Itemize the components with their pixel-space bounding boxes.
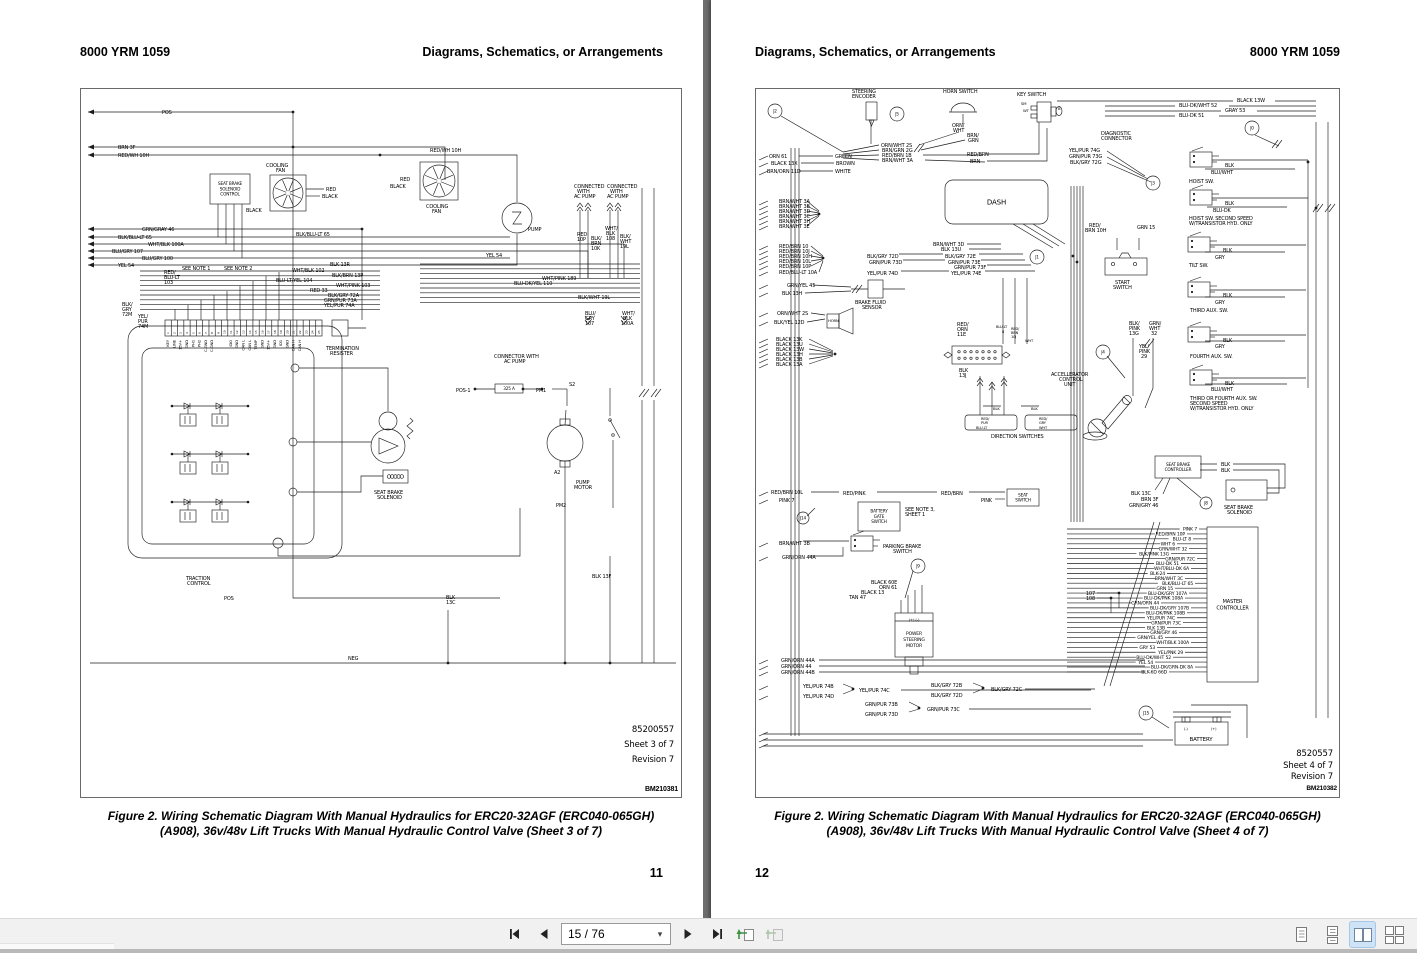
wire-tick — [759, 221, 768, 225]
pdf-page-left: 8000 YRM 1059 Diagrams, Schematics, or A… — [0, 0, 703, 920]
motor-tab — [910, 666, 918, 674]
wire-label: POS-1 — [456, 388, 470, 394]
fan-blade — [433, 183, 438, 195]
terminal-number: 10 — [223, 330, 227, 334]
wire-label: CONTROL — [187, 581, 211, 587]
wire-label: YEL/PUR 74D — [802, 694, 834, 700]
component-label: BATTERY — [870, 509, 888, 514]
wire-label: ENCODER — [852, 94, 876, 100]
terminal-number: 7 — [204, 332, 208, 334]
wire-label: GRY 53 — [1139, 645, 1155, 651]
terminal-label: GND — [184, 340, 189, 348]
terminal-label: GND — [234, 340, 239, 348]
pedal-base — [1083, 432, 1107, 440]
switch-pin — [1191, 291, 1193, 293]
terminal-label: C-GND — [209, 340, 214, 352]
wire-label: BRN/ORN 11D — [767, 169, 801, 175]
battery-terminal-label: (-) — [1184, 727, 1188, 731]
terminal-number: 8 — [210, 332, 214, 334]
first-page-icon — [507, 926, 523, 942]
wire-label: SEE NOTE 2 — [224, 266, 252, 272]
wire-label: BLU-DK — [1213, 208, 1232, 214]
wire-label: POS — [224, 596, 234, 602]
switch-lever — [1190, 232, 1201, 236]
wire-label: BM210381 — [645, 786, 678, 793]
wire-label: GRN/ORN 44A — [782, 555, 816, 561]
wire — [973, 689, 983, 693]
wire-label: GRY — [1039, 421, 1047, 425]
wire-label: YEL/PUR 74C — [858, 688, 890, 694]
terminal-number: 25 — [317, 330, 321, 334]
two-page-icon — [1352, 925, 1374, 945]
wire-label: BLK 13F — [592, 574, 612, 580]
wire-label: PINK 7 — [779, 498, 794, 504]
left-page-header-right: Diagrams, Schematics, or Arrangements — [422, 45, 663, 59]
wire-label: SOLENOID — [1227, 510, 1252, 516]
switch-pin — [1193, 155, 1195, 157]
wire-label: GRN/GRY 46 — [1129, 503, 1158, 509]
switch-pin — [1191, 246, 1193, 248]
wire-label: BLK 13R — [330, 262, 351, 268]
terminal-number: 5 — [191, 332, 195, 334]
junction-dot — [171, 453, 174, 456]
connector-pin — [976, 351, 978, 353]
switch-lever — [1192, 147, 1203, 151]
wire — [843, 145, 879, 152]
wire-label: BRN 10H — [1085, 228, 1107, 234]
connector-pin — [994, 357, 996, 359]
wire-label: RED/WH 10H — [430, 148, 461, 154]
wire-label: FOURTH AUX. SW. — [1190, 354, 1233, 360]
switch-pin — [1193, 373, 1195, 375]
wire-label: GRY — [1215, 255, 1226, 261]
terminal-label: PH1 — [190, 339, 195, 347]
previous-page-icon — [536, 926, 552, 942]
fan-blade — [441, 175, 453, 180]
connector-pin — [958, 357, 960, 359]
wire — [811, 313, 825, 315]
wire-label: PM1 — [536, 388, 546, 394]
terminal-number: 6 — [198, 332, 202, 334]
wire-label: 13J — [959, 373, 966, 379]
wire-label: GREEN — [835, 154, 852, 160]
wire-label: BLU/WHT — [1211, 170, 1234, 176]
wire-label: BLK — [1225, 201, 1235, 207]
wire-label: BLU/WHT — [1211, 387, 1234, 393]
connector-circle — [291, 364, 299, 372]
wire-tick — [759, 266, 768, 270]
junction-dot — [379, 154, 382, 157]
page-layout-group — [1288, 922, 1406, 947]
wire-label: BLK 13U — [941, 247, 962, 253]
wire-label: RED/BLU-LT 10A — [779, 270, 818, 276]
wire-label: Sheet 4 of 7 — [1283, 761, 1333, 771]
fan-blade — [275, 188, 286, 192]
wire — [1013, 224, 1053, 248]
component-label: SEAT BRAKE — [218, 181, 243, 186]
wire-label: BLACK 13X — [771, 161, 798, 167]
wire — [811, 246, 823, 256]
start-switch-icon — [1105, 258, 1147, 275]
wire-label: RESISTER — [330, 351, 354, 357]
component-label: SOLENOID — [220, 186, 241, 191]
fan-blade — [289, 180, 293, 191]
wire-label: BLU/GRY 107 — [112, 249, 143, 255]
switch-pin — [854, 545, 856, 547]
terminal-number: 19 — [279, 330, 283, 334]
next-view-icon — [765, 926, 785, 943]
connector-pin — [988, 357, 990, 359]
switch-pin — [1191, 285, 1193, 287]
fan-blade — [283, 180, 288, 191]
micro-switch-icon — [1190, 190, 1212, 205]
arrowhead-icon — [88, 235, 94, 240]
micro-switch-icon — [1188, 237, 1210, 252]
battery-terminal-label: (+) — [1211, 727, 1217, 731]
micro-switch-icon — [1188, 327, 1210, 342]
first-page-button[interactable] — [503, 922, 527, 946]
junction-dot — [918, 707, 921, 710]
connector-pin — [970, 357, 972, 359]
wire-label: WHT/PINK 103 — [336, 283, 370, 289]
wire-label: 108 — [1086, 596, 1095, 602]
wire-tick — [759, 285, 768, 289]
switch-pin — [1191, 330, 1193, 332]
wire — [88, 112, 500, 598]
wire-label: KEY SWITCH — [1017, 92, 1047, 98]
pump-mark — [512, 212, 522, 224]
junction-dot — [292, 111, 295, 114]
wire-label: RED/BRN — [967, 152, 989, 158]
wire-label: YEL 54 — [117, 263, 134, 269]
junction-dot — [247, 453, 250, 456]
fan-blade — [283, 195, 287, 206]
wire-tick — [759, 201, 768, 205]
fan-blade — [425, 175, 437, 180]
horn-flare — [839, 308, 853, 334]
wire-label: BRN — [970, 159, 981, 165]
connector-pin — [970, 351, 972, 353]
wire-label: PINK — [981, 498, 993, 504]
wire — [843, 690, 853, 694]
right-page-header-left: Diagrams, Schematics, or Arrangements — [755, 45, 996, 59]
wire-label: YEL/PUR 74A — [323, 303, 355, 309]
transistor-icon — [212, 414, 228, 426]
wire-label: GRN 15 — [1137, 225, 1155, 231]
wire — [973, 683, 983, 687]
wire-tick — [759, 163, 768, 167]
fan-blade — [275, 194, 286, 199]
wire — [1191, 705, 1247, 738]
wire-label: SWITCH — [1113, 285, 1132, 291]
wire-label: PM2 — [556, 503, 566, 509]
terminal-number: 17 — [267, 330, 271, 334]
wire-tick — [759, 492, 768, 496]
fan-blade — [290, 194, 301, 198]
wire-label: BLK/BLU-LT 65 — [296, 232, 330, 238]
switch-lever — [1190, 322, 1201, 326]
switch-lever — [1192, 365, 1203, 369]
wire — [909, 709, 919, 712]
wire-tick — [759, 660, 768, 664]
wire — [1233, 464, 1285, 488]
wire-label: BRN 3F — [118, 145, 136, 151]
fan-blade — [290, 188, 301, 193]
wire-tick — [759, 557, 768, 561]
component-box — [1025, 415, 1077, 430]
terminal-number: 23 — [304, 330, 308, 334]
wire-label: BLK/YEL 12D — [774, 320, 805, 326]
wire-label: WHITE — [835, 169, 851, 175]
wire-label: GRY — [1215, 300, 1226, 306]
wire-label: MOTOR — [574, 485, 593, 491]
wire-label: AC PUMP — [504, 359, 526, 365]
switch-contact — [1111, 262, 1114, 265]
wire-label: GRN/YEL 45 — [787, 283, 815, 289]
fan-blade — [433, 167, 438, 179]
wire-label: NEG — [348, 656, 359, 662]
connector-pin — [988, 351, 990, 353]
connector-block-icon — [952, 346, 1002, 364]
wire-tick — [759, 246, 768, 250]
cooling-fan-icon — [273, 178, 303, 208]
last-page-button[interactable] — [705, 922, 729, 946]
terminal-number: 11 — [229, 330, 233, 334]
connector-label: J8 — [1203, 501, 1208, 506]
wire-label: STEERING — [903, 637, 925, 643]
arrowhead-icon — [88, 145, 94, 150]
wire-label: PINK 7 — [1183, 527, 1197, 533]
component-label: HORN — [828, 318, 839, 323]
key-tab — [1031, 114, 1037, 118]
wire-label: BRN/WHT 3B — [779, 541, 811, 547]
wire-label: YEL/PUR 74E — [950, 271, 981, 277]
connector-label: J2 — [772, 109, 777, 114]
wire — [1107, 356, 1125, 378]
wire-tick — [759, 543, 768, 547]
wire-label: 107 — [585, 321, 594, 327]
wiring-schematic-sheet3: SEAT BRAKESOLENOIDCONTROL325 A1KEY2LINE3… — [80, 88, 682, 798]
junction-dot — [292, 146, 295, 149]
wire-label: BLK/GRY 72G — [1070, 160, 1102, 166]
micro-switch-icon — [851, 536, 873, 551]
transistor-icon — [212, 462, 228, 474]
previous-view-icon — [736, 926, 756, 943]
terminal-label: CAN L — [247, 339, 252, 351]
wire-label: GRN/PUR 73C — [927, 707, 960, 713]
wire-tick — [759, 293, 768, 297]
wire-label: 8520557 — [1296, 749, 1333, 759]
wire-label: RED/BRN 10L — [771, 490, 803, 496]
wire-label: HORN SWITCH — [943, 89, 978, 95]
wire-label: BLK/GRY 72D — [931, 693, 963, 699]
wire-label: CONNECTOR — [1101, 136, 1132, 142]
transistor-icon — [180, 510, 196, 522]
switch-cam — [1119, 253, 1131, 258]
terminal-label: GND — [259, 340, 264, 348]
connector-pin — [976, 357, 978, 359]
wire-label: 13C — [446, 600, 456, 606]
terminal-number: 4 — [185, 332, 189, 334]
wire-label: 85200557 — [632, 725, 674, 735]
component-label: MASTER — [1223, 599, 1243, 605]
layout-two-page-continuous-button[interactable] — [1381, 922, 1406, 947]
wire-label: BLK — [1223, 293, 1233, 299]
switch-pin — [1191, 240, 1193, 242]
dropdown-caret-icon[interactable]: ▾ — [652, 929, 668, 940]
wire-label: YEL/PUR 74D — [866, 271, 898, 277]
switch-contact — [1133, 262, 1136, 265]
wire-label: BLK-6D 66D — [1141, 670, 1167, 676]
seat-brake-solenoid-icon — [1226, 480, 1267, 500]
wire-label: 100A — [621, 321, 634, 327]
wire-label: THIRD AUX. SW. — [1189, 308, 1228, 314]
wire-label: GRAY 53 — [1225, 108, 1245, 114]
component-label: DASH — [987, 198, 1006, 206]
wire — [781, 116, 843, 152]
terminal-number: 2 — [172, 332, 176, 334]
terminal-label: 15V+ — [178, 340, 183, 350]
layout-single-page-button[interactable] — [1288, 922, 1313, 947]
junction-dot — [1072, 255, 1075, 258]
wire-tick — [759, 156, 768, 160]
battery-post — [1182, 717, 1190, 722]
key-neck — [1051, 107, 1056, 116]
connector-label: J9 — [915, 564, 920, 569]
wire — [987, 128, 1047, 161]
micro-switch-icon — [1190, 370, 1212, 385]
terminal-label: CAN H — [297, 340, 302, 352]
connector-latch — [1002, 352, 1010, 358]
arrowhead-icon — [88, 227, 94, 232]
wire-label: BLACK — [390, 184, 407, 190]
previous-page-button[interactable] — [532, 922, 556, 946]
terminal-label: CAN L — [241, 339, 246, 351]
wire-label: SWITCH — [893, 549, 912, 555]
connector-label: J0 — [1249, 126, 1254, 131]
component-label: SWITCH — [871, 519, 887, 524]
resistor-icon — [407, 418, 413, 439]
switch-lever — [1190, 277, 1201, 281]
wire-tick — [759, 261, 768, 265]
wire-label: 10P — [577, 237, 586, 243]
wire-tick — [759, 272, 768, 276]
wire-label: BLACK — [322, 194, 339, 200]
next-page-button[interactable] — [676, 922, 700, 946]
pdf-page-right: Diagrams, Schematics, or Arrangements 80… — [711, 0, 1417, 920]
junction-dot — [852, 688, 855, 691]
wire-tick — [759, 313, 768, 317]
component-label: CONTROLLER — [1165, 467, 1192, 472]
wire-label: BRN/WHT 3E — [779, 224, 810, 230]
wire-label: SM — [1021, 101, 1026, 106]
wire-label: RED 33 — [310, 288, 328, 294]
transistor-icon — [180, 462, 196, 474]
component-label: SEAT — [1018, 492, 1028, 497]
wire-label: BLU-DK/YEL 110 — [514, 281, 552, 287]
wire-label: Sheet 3 of 7 — [624, 740, 674, 750]
single-page-icon — [1290, 925, 1312, 945]
connector-label: J4 — [1100, 350, 1105, 355]
motor-delta — [379, 438, 398, 454]
wire-label: GRN — [968, 138, 979, 144]
switch-contact — [612, 434, 615, 437]
wire-tick — [759, 216, 768, 220]
wire-label: BROWN — [836, 161, 855, 167]
wire-label: BLU-LT — [976, 426, 988, 430]
wire-label: RED/PINK — [843, 491, 866, 497]
right-page-caption: Figure 2. Wiring Schematic Diagram With … — [755, 809, 1340, 839]
wire-tick — [759, 666, 768, 670]
arrowhead-icon — [88, 249, 94, 254]
wire-tick — [759, 500, 768, 504]
wire-label: AC PUMP — [607, 194, 629, 200]
wire-label: BLACK 13A — [776, 362, 803, 368]
switch-pin — [1193, 379, 1195, 381]
wire-label: WHT — [953, 128, 965, 134]
wire-label: BLU/GRY 100 — [142, 256, 173, 262]
fan-blade — [440, 167, 445, 179]
page-number-combobox[interactable]: ▾ — [561, 923, 671, 945]
wire-label: RED — [400, 177, 410, 183]
cooling-fan-icon — [270, 175, 306, 211]
wire-label: BM210382 — [1306, 785, 1337, 792]
layout-two-page-button[interactable] — [1350, 922, 1375, 947]
wire-label: BLK/BLU-LT 65 — [118, 235, 152, 241]
wire-label: 29 — [1141, 354, 1147, 360]
wire-label: YEL/PUR 74B — [802, 684, 834, 690]
caption-line2: (A908), 36v/48v Lift Trucks With Manual … — [80, 824, 682, 839]
caption-line1: Figure 2. Wiring Schematic Diagram With … — [80, 809, 682, 824]
junction-dot — [818, 213, 821, 216]
left-page-number: 11 — [650, 866, 663, 880]
wire — [807, 319, 825, 322]
component-box — [332, 320, 348, 336]
viewer-toolbar: ▾ — [0, 918, 1417, 950]
wire-label: BLK — [1221, 468, 1231, 474]
wire-label: GRN/ORN 44B — [781, 670, 815, 676]
pump-motor-icon — [547, 425, 583, 461]
terminal-label: KEY — [165, 339, 170, 347]
previous-view-button[interactable] — [734, 922, 758, 946]
key-tab — [1031, 106, 1037, 110]
terminal-number: 20 — [285, 330, 289, 334]
wire — [1163, 478, 1170, 494]
layout-continuous-button[interactable] — [1319, 922, 1344, 947]
wire — [1033, 224, 1065, 244]
wire-label: YEL 54 — [485, 253, 502, 259]
wire-label: BLACK 13W — [1237, 98, 1265, 104]
solenoid-coil-icon — [383, 470, 408, 483]
transistor-icon — [212, 510, 228, 522]
arrow-chevron — [585, 203, 591, 207]
wire-tick — [759, 322, 768, 326]
page-number-input[interactable] — [562, 927, 652, 941]
wire-label: SHEET 1 — [905, 512, 925, 518]
wire-label: WHT/BLK 100A — [148, 242, 184, 248]
wire — [1107, 151, 1145, 176]
wire-label: 13G — [1129, 331, 1139, 337]
component-label: GATE — [874, 514, 885, 519]
micro-switch-icon — [1188, 282, 1210, 297]
wire-label: 108 — [606, 236, 615, 242]
next-view-button[interactable] — [763, 922, 787, 946]
component-label: CONTROLLER — [1216, 605, 1249, 611]
wire-label: POS — [162, 110, 172, 116]
wire-label: MOTOR — [906, 643, 922, 649]
wire-tick — [759, 251, 768, 255]
wire-tick — [759, 349, 768, 353]
